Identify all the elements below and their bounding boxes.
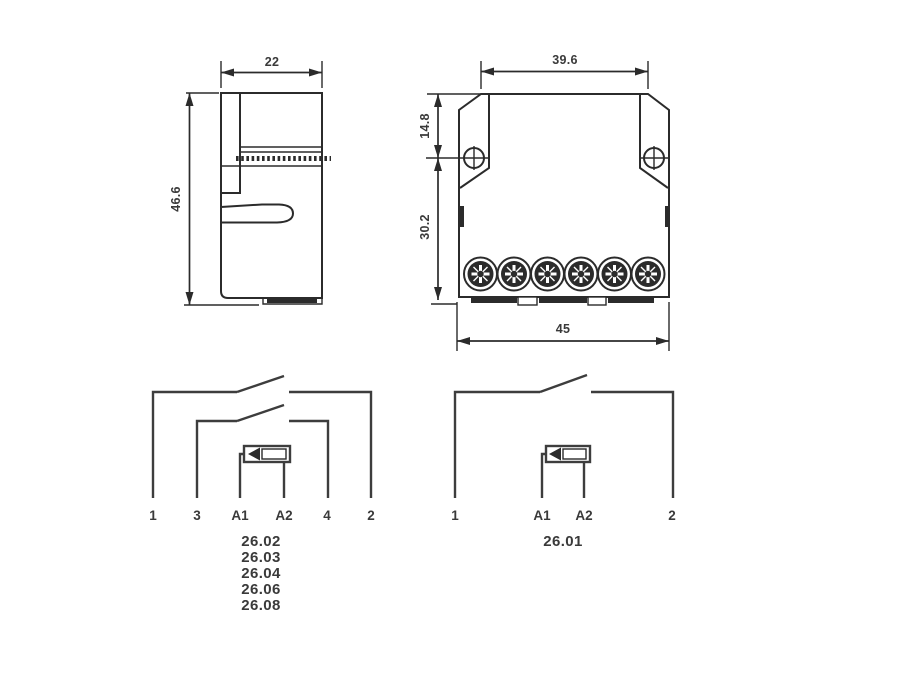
type-number: 26.06 [241,581,281,598]
side-width-label: 22 [265,55,280,69]
terminal-label: A2 [575,508,592,523]
front-view: 39.6 45 14.8 30.2 [418,53,670,351]
coil-legs [240,454,284,498]
type-number: 26.03 [241,549,281,566]
type-number: 26.04 [241,565,281,582]
terminal-label: A1 [533,508,551,523]
terminal-screw [531,258,564,291]
side-height-dimension: 46.6 [169,93,259,305]
front-lower-height-label: 30.2 [418,214,432,240]
terminal-screw [464,258,497,291]
type-number: 26.08 [241,597,281,614]
type-number: 26.02 [241,533,281,550]
terminal-screw [632,258,665,291]
type-number-list: 26.02 26.03 26.04 26.06 26.08 [241,533,281,614]
terminal-labels: 1 A1 A2 2 [451,508,676,523]
side-clip-right [665,206,670,227]
wiring-diagram-two-pole: 1 3 A1 A2 4 2 26.02 26.03 26.04 26.06 26… [149,376,375,614]
side-body-outline [221,93,322,298]
terminal-label: 2 [367,508,375,523]
terminal-label: A2 [275,508,292,523]
pole1-switch-blade [237,376,284,392]
front-bottom-feet [471,297,654,305]
side-clip-left [459,206,464,227]
side-inner-step [222,93,240,193]
terminal-label: 3 [193,508,201,523]
front-bottom-width-dimension: 45 [457,302,669,351]
mounting-screw-left [426,146,489,170]
terminal-label: 4 [323,508,331,523]
side-latch-lever [221,205,293,223]
front-top-width-dimension: 39.6 [481,53,648,89]
coil-symbol [546,446,590,462]
switch-blade [540,375,587,392]
terminal-screw [598,258,631,291]
type-number: 26.01 [543,533,583,550]
technical-drawing-canvas: 22 46.6 [0,0,900,675]
terminal-label: 1 [149,508,157,523]
front-upper-height-label: 14.8 [418,113,432,139]
pole2-switch-blade [237,405,284,421]
side-width-dimension: 22 [221,55,322,88]
front-bottom-width-label: 45 [556,322,571,336]
front-right-ear [640,94,668,188]
terminal-label: A1 [231,508,249,523]
terminal-labels: 1 3 A1 A2 4 2 [149,508,375,523]
front-left-ear [460,94,489,188]
coil-legs [542,454,584,498]
terminal-label: 2 [668,508,676,523]
terminal-screws [464,258,665,291]
coil-symbol [244,446,290,462]
terminal-screw [498,258,531,291]
side-height-label: 46.6 [169,186,183,212]
terminal-label: 1 [451,508,459,523]
mounting-screw-right [641,146,668,170]
relay-drawing: 22 46.6 [0,0,900,675]
side-foot-bar [267,299,317,303]
front-top-width-label: 39.6 [552,53,578,67]
wiring-diagram-one-pole: 1 A1 A2 2 26.01 [451,375,676,550]
type-number-list: 26.01 [543,533,583,550]
terminal-screw [565,258,598,291]
side-view: 22 46.6 [169,55,331,305]
